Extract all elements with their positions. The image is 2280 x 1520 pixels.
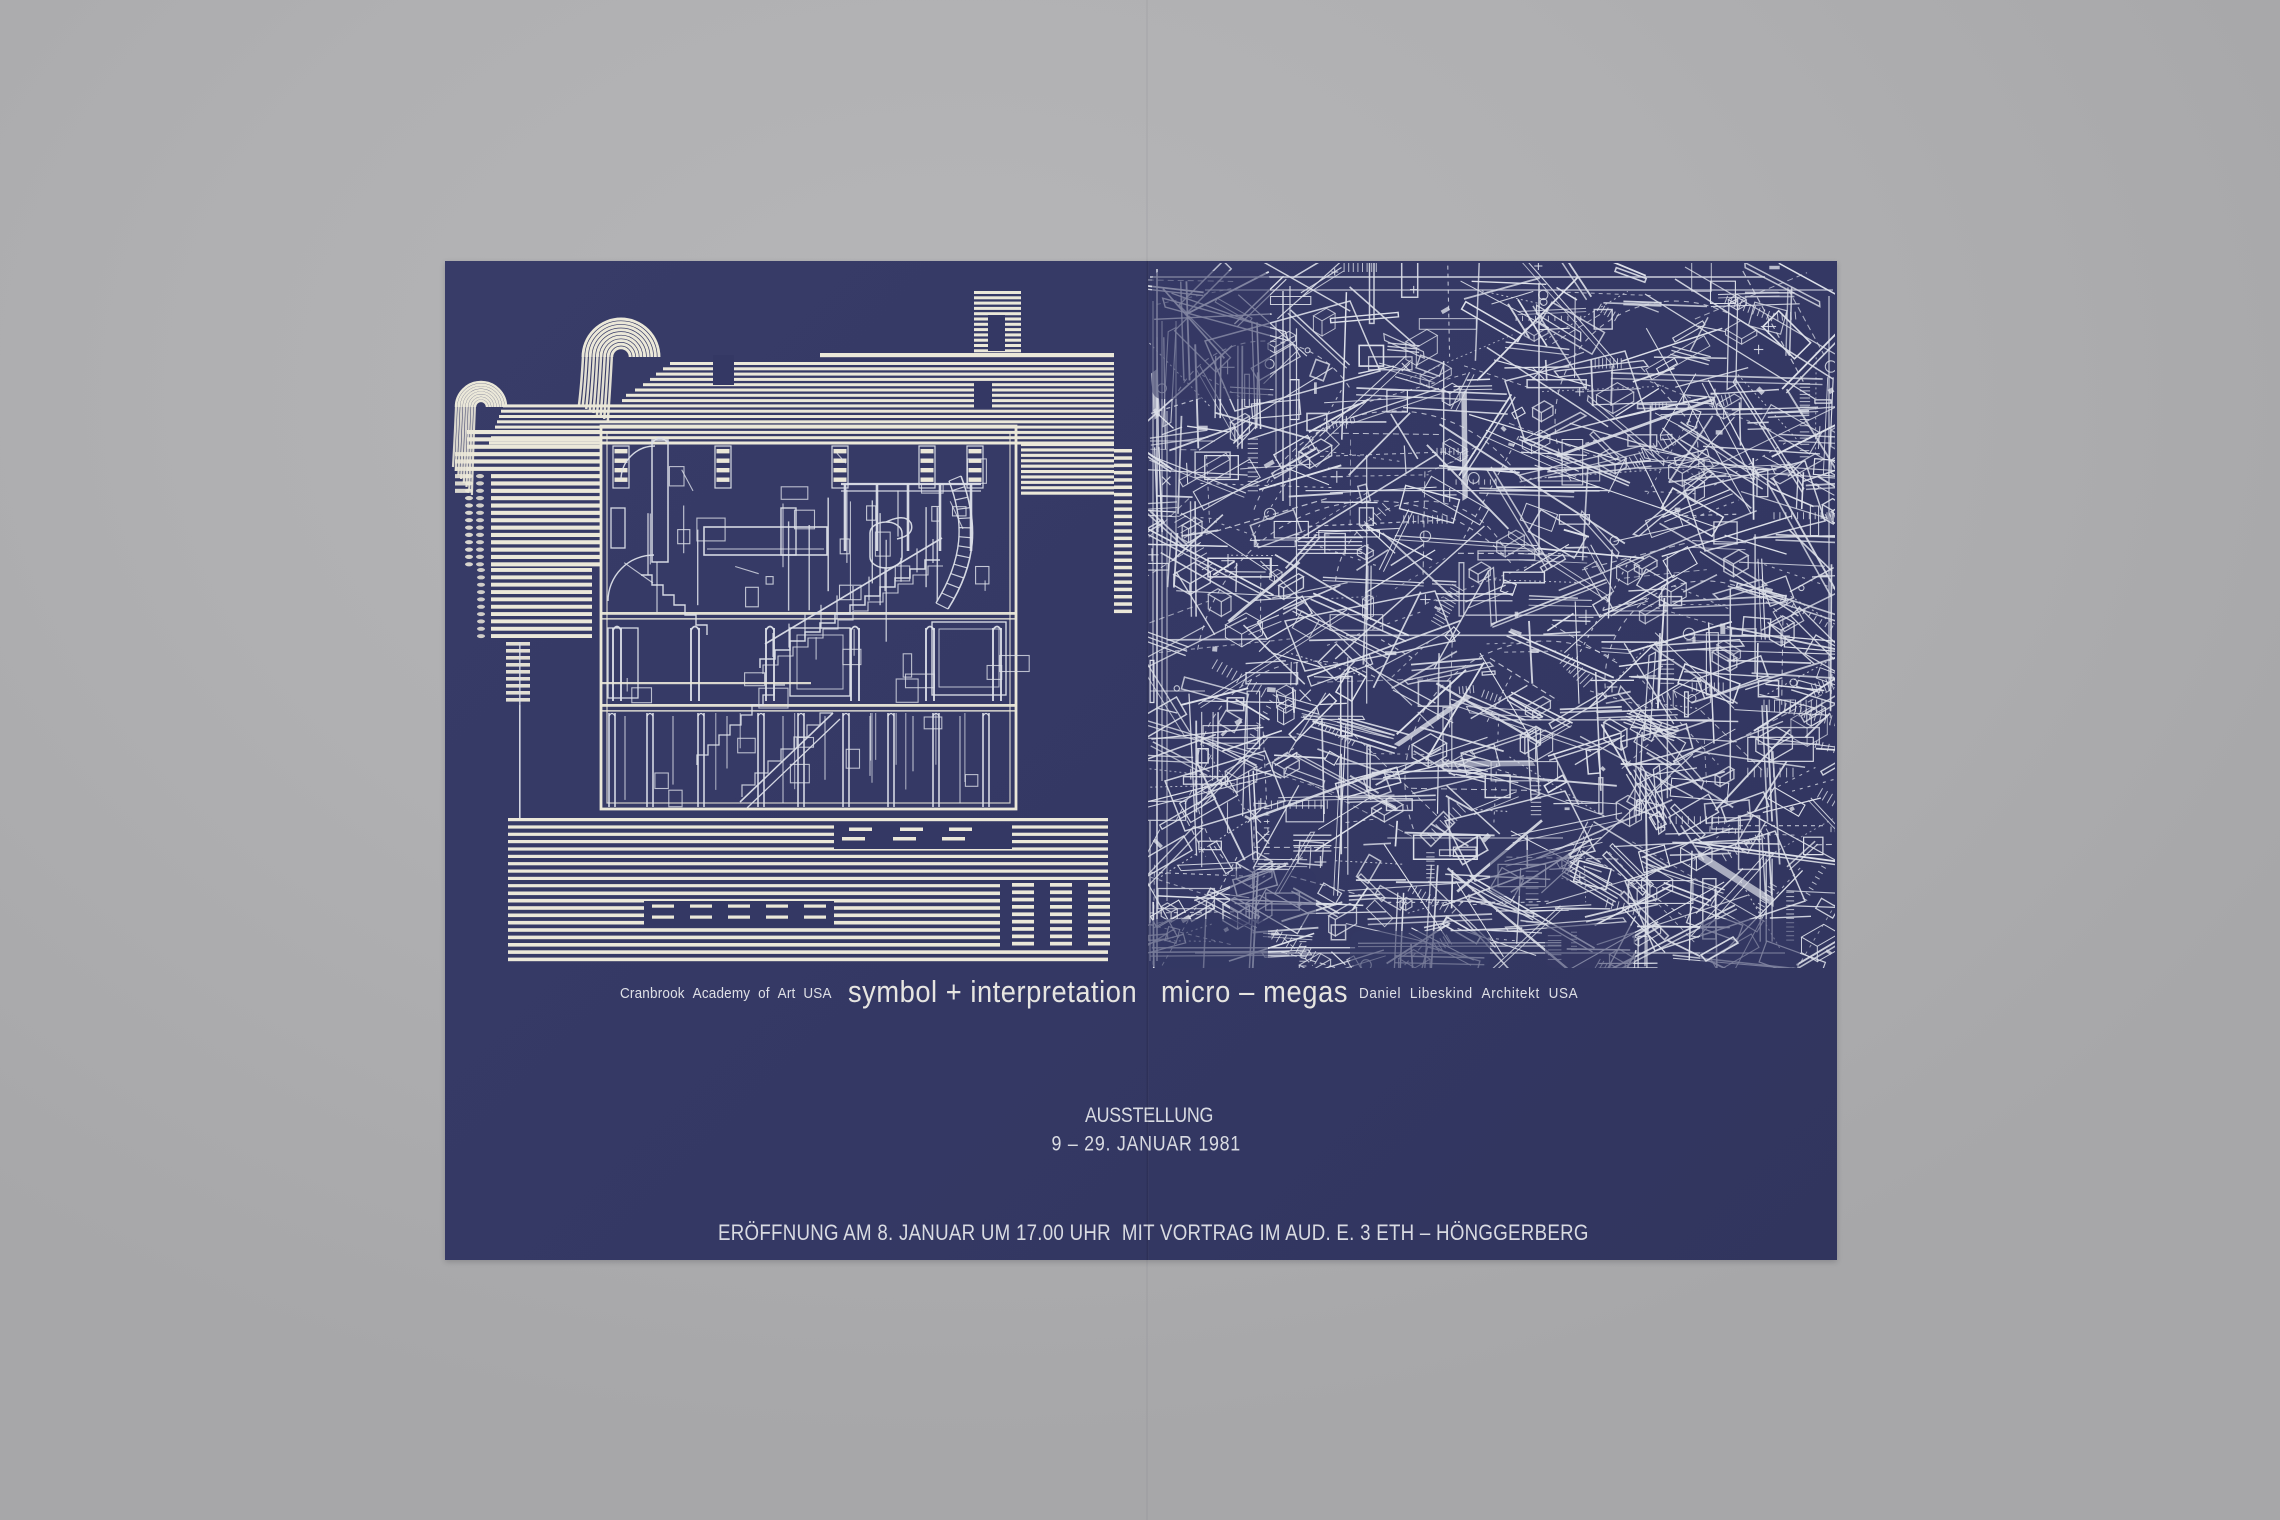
svg-text:symbol + interpretation: symbol + interpretation (848, 975, 1137, 1009)
svg-text:micro – megas: micro – megas (1161, 975, 1348, 1009)
svg-text:Daniel Libeskind Architekt: Daniel Libeskind Architekt USA (1359, 985, 1578, 1002)
svg-text:AUSSTELLUNG: AUSSTELLUNG (1085, 1104, 1213, 1128)
svg-text:Cranbrook Academy of Art U: Cranbrook Academy of Art USA (620, 985, 832, 1002)
svg-text:ERÖFFNUNG AM 8. JANUAR UM 17.0: ERÖFFNUNG AM 8. JANUAR UM 17.00 UHR MIT … (718, 1222, 1588, 1246)
